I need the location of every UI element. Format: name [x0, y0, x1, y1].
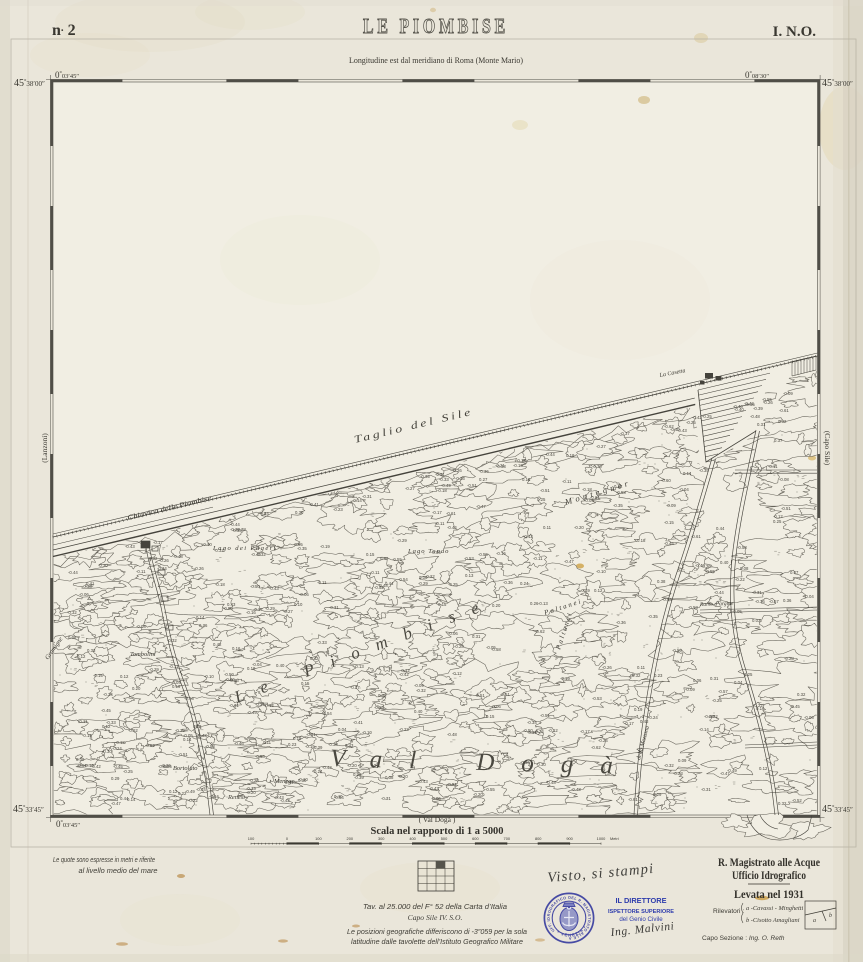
svg-text:-0.48: -0.48: [378, 583, 388, 588]
svg-text:-0.13: -0.13: [538, 601, 548, 606]
svg-text:-0.23: -0.23: [455, 476, 465, 481]
svg-text:-0.32: -0.32: [416, 688, 426, 693]
svg-text:-0.43: -0.43: [429, 786, 439, 791]
svg-text:-0.17: -0.17: [153, 540, 163, 545]
svg-text:-0.25: -0.25: [712, 698, 722, 703]
svg-text:-0.29: -0.29: [149, 667, 159, 672]
svg-text:-0.25: -0.25: [686, 420, 696, 425]
svg-text:0.32: 0.32: [149, 556, 158, 561]
svg-text:-0.55: -0.55: [392, 557, 402, 562]
svg-text:-0.45: -0.45: [664, 541, 674, 546]
svg-text:600: 600: [472, 836, 479, 841]
svg-text:-0.22: -0.22: [735, 577, 745, 582]
svg-text:-0.34: -0.34: [157, 566, 167, 571]
svg-text:-0.23: -0.23: [229, 678, 239, 683]
svg-text:-0.06: -0.06: [804, 715, 814, 720]
svg-text:-0.11: -0.11: [533, 556, 543, 561]
svg-text:-0.54: -0.54: [662, 597, 672, 602]
svg-text:-0.53: -0.53: [464, 556, 474, 561]
svg-text:-0.61: -0.61: [446, 511, 456, 516]
svg-text:-0.25: -0.25: [123, 769, 133, 774]
svg-text:-0.45: -0.45: [790, 704, 800, 709]
svg-text:0.15: 0.15: [522, 477, 531, 482]
svg-text:0.41: 0.41: [86, 581, 95, 586]
svg-text:-0.49: -0.49: [247, 710, 257, 715]
svg-text:-0.34: -0.34: [103, 692, 113, 697]
svg-text:0.25: 0.25: [773, 519, 782, 524]
svg-text:0.36: 0.36: [199, 623, 208, 628]
svg-text:-0.50: -0.50: [250, 584, 260, 589]
svg-text:-0.36: -0.36: [503, 580, 513, 585]
svg-text:0.07: 0.07: [790, 570, 799, 575]
svg-text:700: 700: [504, 836, 511, 841]
svg-text:-0.36: -0.36: [755, 599, 765, 604]
svg-text:-0.50: -0.50: [224, 672, 234, 677]
svg-text:0.42: 0.42: [213, 642, 222, 647]
svg-text:-0.12: -0.12: [452, 671, 462, 676]
svg-text:-0.20: -0.20: [473, 792, 483, 797]
svg-text:-0.35: -0.35: [648, 614, 658, 619]
svg-text:-0.12: -0.12: [264, 703, 274, 708]
svg-text:0.38: 0.38: [657, 579, 666, 584]
svg-text:-0.17: -0.17: [432, 510, 442, 515]
svg-text:-0.51: -0.51: [178, 752, 188, 757]
svg-text:-0.29: -0.29: [265, 606, 275, 611]
svg-text:Capo Sile IV. S.O.: Capo Sile IV. S.O.: [408, 913, 463, 922]
svg-text:-0.27: -0.27: [350, 685, 360, 690]
svg-text:-0.48: -0.48: [173, 554, 183, 559]
svg-text:0.27: 0.27: [479, 477, 488, 482]
svg-text:Capo Sezione : Ing. O. Reth: Capo Sezione : Ing. O. Reth: [702, 935, 785, 942]
svg-text:0.37: 0.37: [774, 438, 783, 443]
svg-text:0.36: 0.36: [783, 598, 792, 603]
svg-text:0.14: 0.14: [683, 471, 692, 476]
svg-text:(Capo Sile): (Capo Sile): [823, 431, 832, 466]
svg-text:-0.28: -0.28: [454, 644, 464, 649]
svg-text:-0.54: -0.54: [322, 711, 332, 716]
svg-text:-0.35: -0.35: [162, 764, 172, 769]
svg-text:-0.58: -0.58: [737, 545, 747, 550]
svg-text:-0.54: -0.54: [398, 577, 408, 582]
svg-text:a -Cavassi - Minghetti: a -Cavassi - Minghetti: [746, 905, 804, 912]
svg-text:0.22: 0.22: [178, 791, 187, 796]
svg-text:-0.19: -0.19: [560, 676, 570, 681]
svg-text:0.22: 0.22: [193, 724, 202, 729]
svg-text:0.32: 0.32: [632, 673, 641, 678]
svg-text:100: 100: [315, 836, 322, 841]
svg-text:-0.25: -0.25: [702, 414, 712, 419]
svg-text:-0.44: -0.44: [447, 525, 457, 530]
svg-text:-0.12: -0.12: [773, 514, 783, 519]
svg-text:300: 300: [378, 836, 385, 841]
svg-text:-0.48: -0.48: [750, 414, 760, 419]
svg-text:-0.61: -0.61: [691, 534, 701, 539]
svg-text:-0.12: -0.12: [400, 668, 410, 673]
svg-text:0.40: 0.40: [276, 663, 285, 668]
svg-text:-0.42: -0.42: [280, 798, 290, 803]
svg-text:-0.18: -0.18: [215, 582, 225, 587]
svg-text:-0.44: -0.44: [68, 570, 78, 575]
svg-text:500: 500: [441, 836, 448, 841]
svg-text:-0.60: -0.60: [661, 478, 671, 483]
svg-text:-0.30: -0.30: [102, 749, 112, 754]
svg-text:-0.49: -0.49: [580, 588, 590, 593]
svg-text:0.14: 0.14: [196, 615, 205, 620]
svg-text:-0.62: -0.62: [535, 629, 545, 634]
svg-text:I. N.O.: I. N.O.: [773, 24, 817, 40]
svg-text:0.19: 0.19: [247, 666, 256, 671]
svg-text:-0.29: -0.29: [397, 538, 407, 543]
svg-text:-0.04: -0.04: [679, 487, 689, 492]
svg-text:Ramo d’argine: Ramo d’argine: [699, 601, 734, 608]
svg-text:0.16: 0.16: [232, 646, 241, 651]
svg-text:0.32: 0.32: [778, 801, 787, 806]
svg-text:-0.14: -0.14: [196, 787, 206, 792]
svg-text:R. Magistrato alle Acque: R. Magistrato alle Acque: [718, 855, 821, 869]
svg-text:-0.28: -0.28: [249, 778, 259, 783]
svg-text:0.03: 0.03: [752, 618, 761, 623]
svg-text:Scala nel rapporto di 1 a 5000: Scala nel rapporto di 1 a 5000: [371, 825, 504, 837]
svg-text:0.31: 0.31: [710, 676, 719, 681]
svg-text:0.24: 0.24: [314, 769, 323, 774]
svg-text:0.24: 0.24: [520, 581, 529, 586]
svg-text:Ufficio Idrografico: Ufficio Idrografico: [732, 868, 806, 882]
svg-text:-0.53: -0.53: [688, 605, 698, 610]
svg-text:-0.29: -0.29: [418, 581, 428, 586]
svg-text:-0.27: -0.27: [405, 486, 415, 491]
svg-text:-0.61: -0.61: [628, 797, 638, 802]
svg-text:b -Cisotto Amagliani: b -Cisotto Amagliani: [746, 917, 800, 924]
svg-text:-0.06: -0.06: [79, 592, 89, 597]
svg-text:-0.11: -0.11: [78, 719, 88, 724]
svg-text:0.32: 0.32: [797, 692, 806, 697]
svg-text:-0.48: -0.48: [546, 780, 556, 785]
svg-text:0.06: 0.06: [693, 678, 702, 683]
svg-text:-0.32: -0.32: [708, 714, 718, 719]
svg-text:0.40: 0.40: [414, 709, 423, 714]
svg-text:-0.40: -0.40: [695, 563, 705, 568]
svg-text:-0.54: -0.54: [334, 795, 344, 800]
svg-text:0.18: 0.18: [566, 453, 575, 458]
svg-text:0.11: 0.11: [637, 665, 646, 670]
svg-text:0.12: 0.12: [594, 588, 603, 593]
svg-text:-0.09: -0.09: [783, 391, 793, 396]
svg-text:Lago dei Pagèri: Lago dei Pagèri: [212, 545, 277, 552]
svg-text:-0.26: -0.26: [194, 566, 204, 571]
svg-text:45°38′00″: 45°38′00″: [14, 78, 45, 89]
svg-text:-0.25: -0.25: [448, 582, 458, 587]
svg-text:-0.33: -0.33: [106, 720, 116, 725]
svg-text:-0.31: -0.31: [362, 494, 372, 499]
svg-text:n. 2: n. 2: [52, 22, 76, 39]
svg-text:-0.10: -0.10: [596, 569, 606, 574]
svg-text:800: 800: [535, 836, 542, 841]
svg-text:-0.58: -0.58: [255, 754, 265, 759]
svg-text:-0.35: -0.35: [420, 474, 430, 479]
svg-text:-0.36: -0.36: [616, 620, 626, 625]
svg-text:-0.24: -0.24: [259, 511, 269, 516]
svg-text:-0.05: -0.05: [293, 542, 303, 547]
svg-text:-0.51: -0.51: [475, 693, 485, 698]
svg-text:-0.49: -0.49: [727, 768, 737, 773]
svg-text:-0.10: -0.10: [204, 674, 214, 679]
svg-text:-0.04: -0.04: [804, 594, 814, 599]
svg-text:-0.22: -0.22: [425, 574, 435, 579]
svg-text:-0.29: -0.29: [145, 743, 155, 748]
svg-text:-0.06: -0.06: [299, 592, 309, 597]
svg-text:0.29: 0.29: [111, 776, 120, 781]
svg-text:-0.52: -0.52: [792, 798, 802, 803]
svg-text:-0.09: -0.09: [666, 503, 676, 508]
svg-text:Levata nel 1931: Levata nel 1931: [734, 887, 804, 901]
svg-text:-0.06: -0.06: [448, 631, 458, 636]
svg-text:-0.41: -0.41: [306, 732, 316, 737]
svg-text:-0.26: -0.26: [452, 468, 462, 473]
svg-text:-0.51: -0.51: [447, 782, 457, 787]
svg-text:-0.37: -0.37: [620, 431, 630, 436]
svg-text:-0.51: -0.51: [540, 488, 550, 493]
svg-text:-0.47: -0.47: [564, 559, 574, 564]
svg-text:-0.19: -0.19: [320, 544, 330, 549]
svg-text:-0.47: -0.47: [476, 504, 486, 509]
svg-text:-0.35: -0.35: [699, 468, 709, 473]
svg-text:400: 400: [409, 836, 416, 841]
svg-text:-0.62: -0.62: [591, 745, 601, 750]
svg-text:-0.11: -0.11: [562, 479, 572, 484]
svg-text:-0.16: -0.16: [184, 696, 194, 701]
svg-text:-0.21: -0.21: [435, 472, 445, 477]
svg-text:IL DIRETTORE: IL DIRETTORE: [615, 896, 666, 905]
svg-text:-0.49: -0.49: [441, 483, 451, 488]
svg-text:0.19: 0.19: [634, 707, 643, 712]
svg-text:-0.17: -0.17: [624, 721, 634, 726]
svg-text:-0.24: -0.24: [112, 746, 122, 751]
svg-text:-0.23: -0.23: [399, 727, 409, 732]
svg-text:-0.40: -0.40: [251, 552, 261, 557]
svg-text:0.15: 0.15: [438, 602, 447, 607]
svg-text:0.30: 0.30: [295, 510, 304, 515]
svg-text:-0.11: -0.11: [370, 570, 380, 575]
svg-text:-0.12: -0.12: [548, 728, 558, 733]
svg-text:45°33′45″: 45°33′45″: [822, 804, 853, 815]
svg-text:-0.10: -0.10: [362, 730, 372, 735]
svg-text:-0.32: -0.32: [664, 763, 674, 768]
svg-text:-0.40: -0.40: [733, 404, 743, 409]
svg-text:-0.26: -0.26: [159, 558, 169, 563]
svg-text:-0.08: -0.08: [136, 624, 146, 629]
svg-text:-0.58: -0.58: [491, 647, 501, 652]
svg-text:-0.22: -0.22: [188, 798, 198, 803]
svg-text:100: 100: [248, 836, 255, 841]
svg-text:0.39: 0.39: [76, 757, 85, 762]
svg-text:0.44: 0.44: [716, 526, 725, 531]
svg-text:-0.13: -0.13: [354, 664, 364, 669]
svg-text:0.12: 0.12: [759, 766, 768, 771]
svg-text:-0.53: -0.53: [592, 696, 602, 701]
svg-text:-0.34: -0.34: [209, 794, 219, 799]
svg-text:-0.09: -0.09: [685, 687, 695, 692]
svg-text:-0.11: -0.11: [136, 569, 146, 574]
svg-text:Tombolini: Tombolini: [130, 651, 156, 658]
svg-text:al livello medio del mare: al livello medio del mare: [79, 866, 158, 875]
svg-text:-0.32: -0.32: [67, 610, 77, 615]
svg-text:-0.15: -0.15: [93, 673, 103, 678]
svg-text:b: b: [829, 913, 832, 919]
svg-text:-0.48: -0.48: [571, 787, 581, 792]
svg-text:-0.50: -0.50: [223, 606, 233, 611]
svg-text:-0.35: -0.35: [613, 503, 623, 508]
svg-text:-0.06: -0.06: [491, 704, 501, 709]
svg-text:0.14: 0.14: [127, 797, 136, 802]
svg-text:-0.55: -0.55: [478, 552, 488, 557]
svg-text:-0.20: -0.20: [398, 774, 408, 779]
svg-text:0.09: 0.09: [678, 758, 687, 763]
svg-text:LE PIOMBISE: LE PIOMBISE: [363, 14, 509, 38]
svg-text:-0.19: -0.19: [82, 733, 92, 738]
svg-text:latitudine dalle tavolette del: latitudine dalle tavolette dell’Istituto…: [351, 937, 523, 946]
svg-text:0.39: 0.39: [314, 745, 323, 750]
svg-text:-0.16: -0.16: [246, 610, 256, 615]
svg-text:0.13: 0.13: [465, 573, 474, 578]
svg-text:-0.31: -0.31: [381, 796, 391, 801]
svg-text:-0.33: -0.33: [439, 477, 449, 482]
svg-text:-0.36: -0.36: [479, 469, 489, 474]
svg-text:-0.55: -0.55: [485, 787, 495, 792]
svg-text:0.32: 0.32: [778, 419, 787, 424]
svg-text:-0.31: -0.31: [752, 590, 762, 595]
svg-text:-0.45: -0.45: [113, 764, 123, 769]
svg-text:-0.42: -0.42: [744, 401, 754, 406]
svg-text:0.11: 0.11: [543, 525, 552, 530]
svg-text:0.31: 0.31: [757, 422, 766, 427]
svg-text:-0.51: -0.51: [540, 713, 550, 718]
svg-text:-0.18: -0.18: [437, 488, 447, 493]
svg-text:-0.59: -0.59: [672, 648, 682, 653]
svg-text:-0.61: -0.61: [779, 408, 789, 413]
svg-text:0.14: 0.14: [183, 737, 192, 742]
svg-text:-0.31: -0.31: [701, 787, 711, 792]
svg-text:-0.45: -0.45: [101, 708, 111, 713]
svg-text:-0.26: -0.26: [602, 665, 612, 670]
svg-text:0.15: 0.15: [293, 736, 302, 741]
svg-text:-0.23: -0.23: [673, 771, 683, 776]
svg-text:-0.23: -0.23: [333, 507, 343, 512]
svg-text:(Lanzoni): (Lanzoni): [40, 433, 49, 463]
svg-text:-0.27: -0.27: [283, 609, 293, 614]
svg-text:ISPETTORE SUPERIORE: ISPETTORE SUPERIORE: [608, 909, 674, 915]
svg-text:Tav. al 25.000 del F° 52 dell: Tav. al 25.000 del F° 52 della Carta d’I…: [363, 902, 507, 911]
svg-text:0.12: 0.12: [120, 674, 129, 679]
svg-text:-0.16: -0.16: [84, 763, 94, 768]
svg-text:-0.30: -0.30: [592, 464, 602, 469]
svg-text:-0.06: -0.06: [431, 796, 441, 801]
svg-text:0.25: 0.25: [537, 497, 546, 502]
svg-text:-0.62: -0.62: [664, 424, 674, 429]
svg-text:-0.51: -0.51: [467, 483, 477, 488]
svg-text:Renesi: Renesi: [227, 794, 245, 801]
svg-text:-0.11: -0.11: [317, 580, 327, 585]
svg-text:-0.47: -0.47: [111, 801, 121, 806]
svg-text:-0.11: -0.11: [768, 464, 778, 469]
svg-text:-0.38: -0.38: [230, 527, 240, 532]
svg-text:-0.24: -0.24: [598, 738, 608, 743]
svg-text:-0.41: -0.41: [353, 720, 363, 725]
svg-text:0.23: 0.23: [288, 742, 297, 747]
svg-text:-0.51: -0.51: [781, 506, 791, 511]
svg-text:-0.46: -0.46: [234, 741, 244, 746]
svg-text:-0.43: -0.43: [269, 586, 279, 591]
svg-text:0.38: 0.38: [385, 775, 394, 780]
svg-text:0.40: 0.40: [720, 560, 729, 565]
svg-text:0.33: 0.33: [87, 648, 96, 653]
svg-text:-0.08: -0.08: [779, 477, 789, 482]
svg-text:-0.10: -0.10: [513, 463, 523, 468]
svg-text:-0.20: -0.20: [246, 790, 256, 795]
svg-text:Le quote sono espresse in metr: Le quote sono espresse in metri e riferi…: [53, 855, 155, 864]
svg-text:0.25: 0.25: [744, 672, 753, 677]
svg-text:-0.11: -0.11: [169, 664, 179, 669]
svg-text:0.31: 0.31: [472, 634, 481, 639]
svg-text:-0.27: -0.27: [596, 444, 606, 449]
svg-text:0.20: 0.20: [132, 686, 141, 691]
svg-text:Rilevatori :: Rilevatori :: [713, 908, 744, 915]
svg-text:Le posizioni geografiche diffe: Le posizioni geografiche differiscono di…: [347, 927, 527, 936]
svg-text:-0.41: -0.41: [309, 502, 319, 507]
svg-text:0.08: 0.08: [740, 566, 749, 571]
svg-text:0.29: 0.29: [653, 792, 662, 797]
svg-text:-0.32: -0.32: [167, 638, 177, 643]
svg-text:0.39: 0.39: [380, 556, 389, 561]
svg-text:Lago Tondo: Lago Tondo: [407, 548, 449, 555]
svg-text:-0.62: -0.62: [128, 728, 138, 733]
svg-text:0.12: 0.12: [77, 654, 86, 659]
svg-text:-0.23: -0.23: [784, 656, 794, 661]
svg-text:0.15: 0.15: [366, 552, 375, 557]
svg-text:-0.53: -0.53: [374, 705, 384, 710]
svg-text:0.04: 0.04: [734, 680, 743, 685]
svg-text:-0.57: -0.57: [718, 689, 728, 694]
svg-text:0.08: 0.08: [68, 635, 77, 640]
svg-text:-0.33: -0.33: [317, 640, 327, 645]
svg-text:-0.51: -0.51: [500, 692, 510, 697]
svg-text:-0.15: -0.15: [664, 520, 674, 525]
svg-text:0.04: 0.04: [338, 727, 347, 732]
svg-text:-0.30: -0.30: [98, 563, 108, 568]
svg-text:0.18: 0.18: [637, 538, 646, 543]
svg-text:-0.10: -0.10: [202, 542, 212, 547]
svg-text:-0.18: -0.18: [115, 740, 125, 745]
svg-text:Metri: Metri: [610, 836, 619, 841]
svg-text:-0.43: -0.43: [125, 544, 135, 549]
svg-text:-0.44: -0.44: [714, 590, 724, 595]
svg-text:Longitudine est dal meridiano: Longitudine est dal meridiano di Roma (M…: [349, 56, 523, 65]
svg-text:45°38′00″: 45°38′00″: [822, 78, 853, 89]
svg-text:0.32: 0.32: [378, 693, 387, 698]
svg-text:-0.44: -0.44: [545, 452, 555, 457]
svg-text:a: a: [813, 918, 816, 924]
svg-text:0.26: 0.26: [530, 601, 539, 606]
svg-text:-0.57: -0.57: [769, 599, 779, 604]
svg-text:0.30: 0.30: [298, 778, 307, 783]
svg-text:1000: 1000: [597, 836, 606, 841]
svg-text:-0.48: -0.48: [197, 733, 207, 738]
svg-text:-0.05: -0.05: [732, 609, 742, 614]
svg-text:0.23: 0.23: [654, 673, 663, 678]
svg-text:-0.21: -0.21: [495, 463, 505, 468]
svg-text:-0.58: -0.58: [205, 744, 215, 749]
svg-text:-0.24: -0.24: [648, 715, 658, 720]
svg-text:-0.13: -0.13: [523, 534, 533, 539]
